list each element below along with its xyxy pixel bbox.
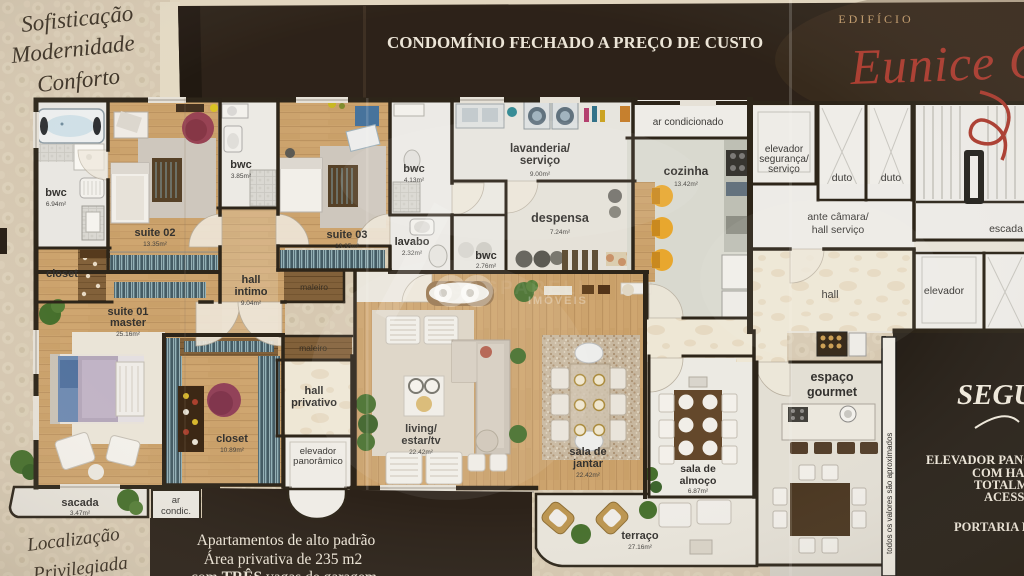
svg-text:GASPARELI: GASPARELI	[450, 278, 586, 299]
